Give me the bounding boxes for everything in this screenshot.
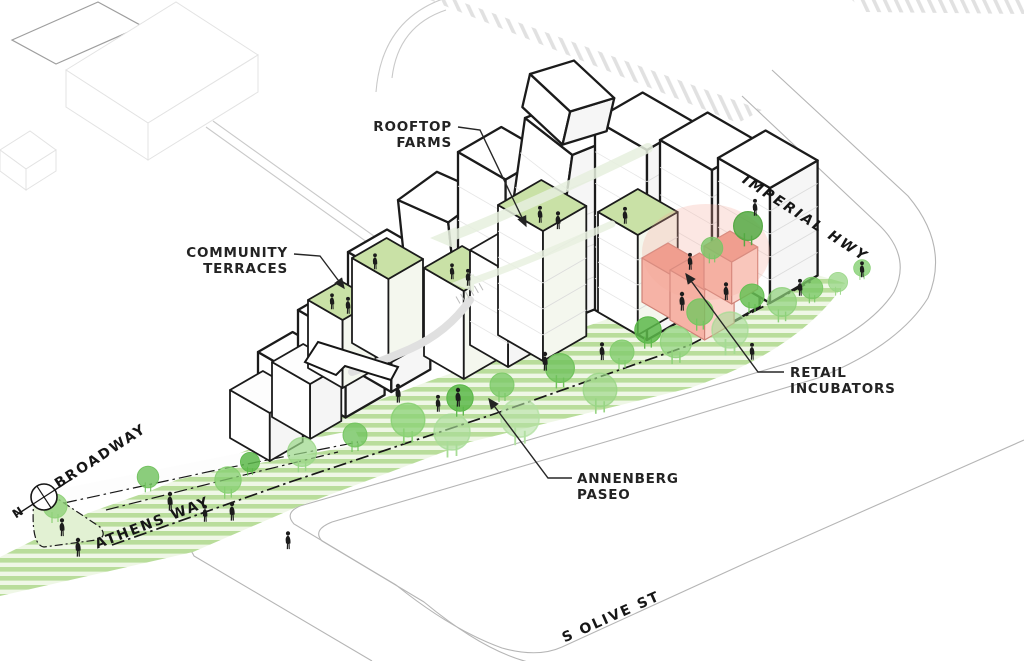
context-crosswalks <box>376 0 1024 123</box>
callout-retail-incubators-line1: RETAIL <box>790 365 847 381</box>
north-label: N <box>10 504 26 521</box>
site-diagram-canvas: ROOFTOP FARMS COMMUNITY TERRACES RETAIL … <box>0 0 1024 661</box>
callout-retail-incubators-line2: INCUBATORS <box>790 381 896 397</box>
axon-site-diagram: ROOFTOP FARMS COMMUNITY TERRACES RETAIL … <box>0 0 1024 661</box>
callout-community-terraces-line2: TERRACES <box>203 261 288 277</box>
crosswalk-band <box>852 0 1024 14</box>
callout-community-terraces-line1: COMMUNITY <box>186 245 288 261</box>
callout-community-terraces: COMMUNITY TERRACES <box>186 245 344 288</box>
street-label-s-olive-st: S OLIVE ST <box>560 588 663 646</box>
callout-annenberg-paseo-line1: ANNENBERG <box>577 471 679 487</box>
callout-annenberg-paseo-line2: PASEO <box>577 487 631 503</box>
callout-rooftop-farms-line2: FARMS <box>396 135 452 151</box>
callout-rooftop-farms-line1: ROOFTOP <box>373 119 452 135</box>
